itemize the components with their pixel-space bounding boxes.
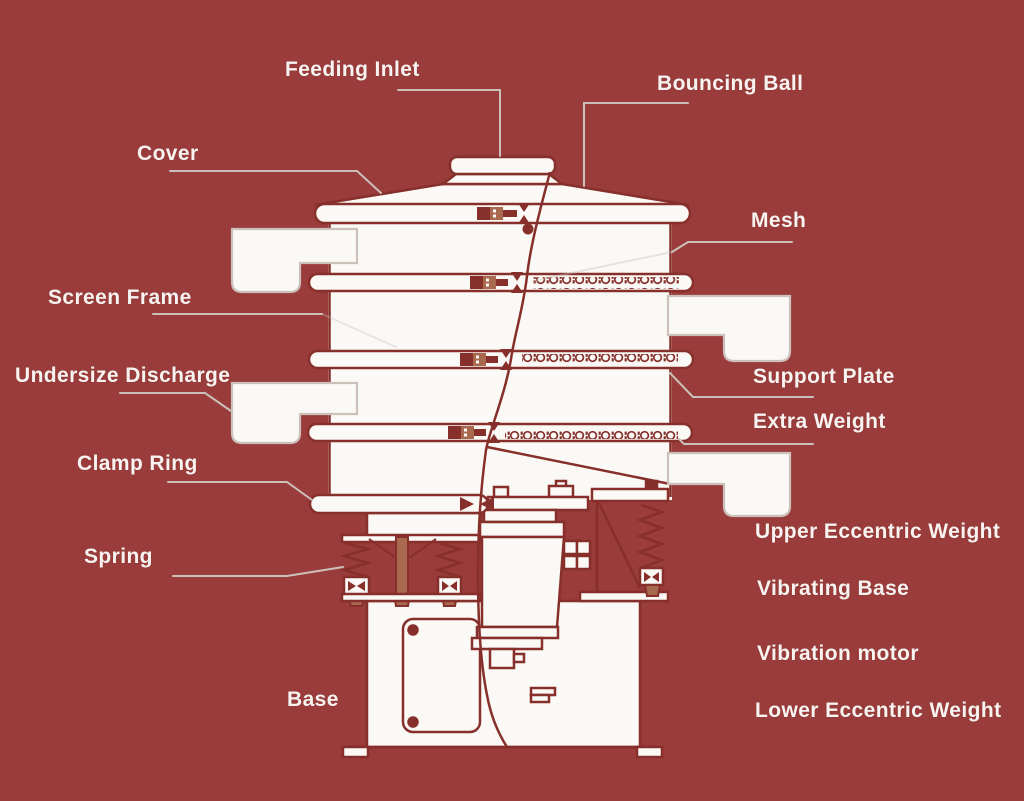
leader-mesh [672,242,792,252]
clamp-block-tan [483,276,496,289]
clamp-block [460,353,473,366]
spring-right [640,505,662,568]
motor-bolt [577,556,590,569]
motor-bearing [490,649,514,668]
guide-rod [396,537,408,594]
label-extra-weight: Extra Weight [753,411,886,433]
lower-eccentric-weight-part [477,627,558,638]
label-base: Base [287,689,339,711]
label-support-plate: Support Plate [753,366,895,388]
clamp-block [477,207,490,220]
leader-feeding-inlet [398,90,500,156]
label-undersize-discharge: Undersize Discharge [15,365,230,387]
spring-bottom-plate-left [342,594,480,601]
leader-clamp-ring [168,482,312,500]
cabinet-detail [531,695,549,702]
motor-top-plate-2 [480,522,564,537]
leader-spring [173,567,343,576]
clamp-dot [493,215,496,218]
label-lower-eccentric-weight: Lower Eccentric Weight [755,700,1001,722]
label-feeding-inlet: Feeding Inlet [285,59,420,81]
motor-top-plate-1 [484,510,556,522]
label-mesh: Mesh [751,210,806,232]
diagram-stage: Feeding Inlet Bouncing Ball Cover Mesh S… [0,0,1024,801]
vibrating-sieve-diagram [0,0,1024,801]
clamp-dot [476,356,479,359]
clamp-dot [486,284,489,287]
label-vibration-motor: Vibration motor [757,643,919,665]
clamp-dot [493,210,496,213]
machine-drawing [328,214,672,757]
right-outlet-extra-weight [668,453,790,516]
clamp-rod [496,279,508,286]
clamp-block-tan [461,426,474,439]
cover-part [315,184,689,205]
lower-eccentric-plate [472,638,542,649]
clamp-dot [464,429,467,432]
label-bouncing-ball: Bouncing Ball [657,73,803,95]
spring-top-plate-left [342,535,480,542]
clamp-dot [476,361,479,364]
base-bolt-top [409,626,418,635]
mesh-section-2 [522,354,678,366]
eccentric-bolt-3 [549,486,573,497]
clamp-block-tan [490,207,503,220]
base-foot-left [343,747,368,757]
base-foot-right [637,747,662,757]
label-spring: Spring [84,546,153,568]
leader-bouncing-ball [584,103,688,186]
mesh-section-3 [505,427,678,439]
motor-bolt [564,556,577,569]
bouncing-ball-part [523,224,534,235]
motor-bolt [564,541,577,554]
label-upper-eccentric-weight: Upper Eccentric Weight [755,521,1000,543]
leader-extra-weight [679,439,813,444]
label-clamp-ring: Clamp Ring [77,453,198,475]
clamp-rod [474,429,486,436]
inlet-neck [443,174,562,184]
spring-foot-right [645,585,660,596]
spring-seat-left-inner [438,577,461,595]
clamp-block [448,426,461,439]
leader-undersize-discharge [120,393,231,411]
label-screen-frame: Screen Frame [48,287,192,309]
label-cover: Cover [137,143,199,165]
clamp-dot [464,434,467,437]
base-bolt-bottom [409,718,418,727]
motor-bolt [577,541,590,554]
clamp-block [470,276,483,289]
vibration-motor-part [482,537,564,627]
cover-group [315,157,689,205]
clamp-rod [486,356,498,363]
spring-seat-left-outer [344,577,369,595]
eccentric-bolt-1 [494,487,508,497]
clamp-rod [503,210,517,217]
clamp-block-tan [473,353,486,366]
label-vibrating-base: Vibrating Base [757,578,909,600]
feeding-inlet-part [450,157,555,174]
base-panel [403,619,480,732]
clamp-dot [486,279,489,282]
spring-left-outer [344,543,368,577]
bottom-skirt [367,513,480,537]
upper-eccentric-weight-part [488,497,588,510]
spring-left-inner [438,543,460,577]
mesh-section-1 [533,277,679,289]
bearing-tab [514,654,524,662]
spring-seat-right [640,568,663,585]
vibrating-base-flange [592,489,668,501]
leader-cover [170,171,381,193]
vibrating-base-brace [599,503,640,588]
